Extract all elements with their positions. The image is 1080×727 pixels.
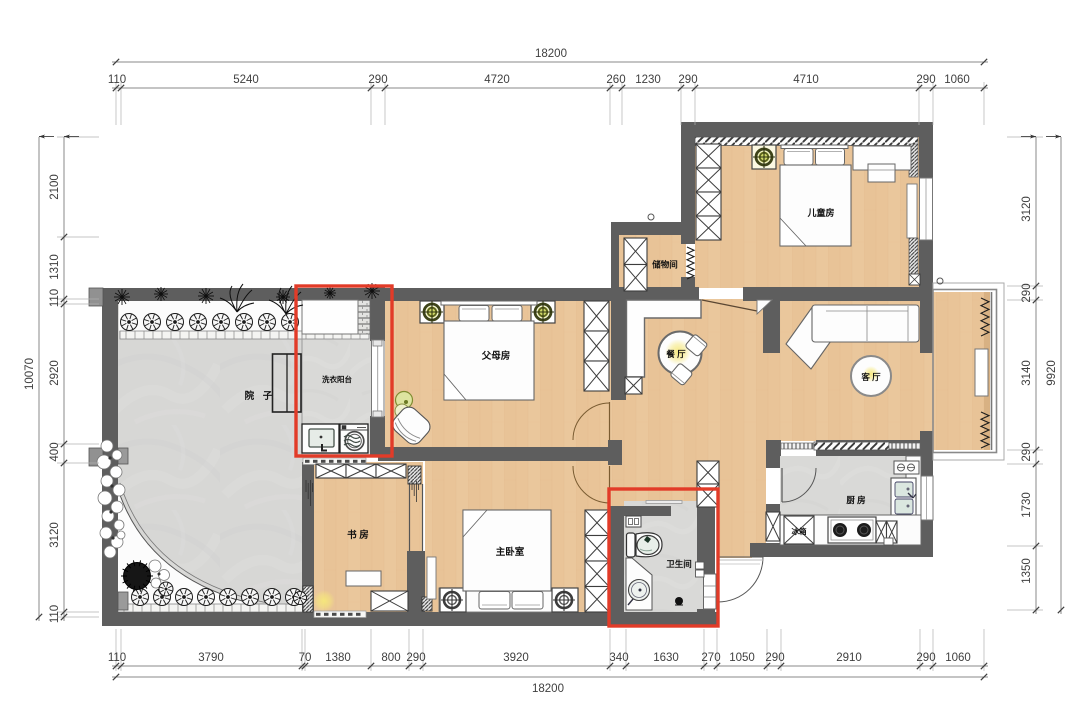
svg-text:1060: 1060 bbox=[944, 74, 970, 86]
svg-text:洗衣阳台: 洗衣阳台 bbox=[322, 374, 352, 384]
svg-text:2100: 2100 bbox=[49, 174, 61, 200]
svg-text:260: 260 bbox=[606, 74, 625, 86]
svg-text:4710: 4710 bbox=[793, 74, 819, 86]
svg-text:储物间: 储物间 bbox=[651, 260, 678, 270]
svg-text:110: 110 bbox=[49, 605, 61, 623]
svg-text:4720: 4720 bbox=[484, 74, 510, 86]
svg-text:290: 290 bbox=[678, 74, 697, 86]
svg-text:餐 厅: 餐 厅 bbox=[665, 349, 686, 359]
svg-text:2910: 2910 bbox=[836, 652, 862, 664]
svg-text:1310: 1310 bbox=[49, 254, 61, 280]
svg-text:3120: 3120 bbox=[1021, 196, 1033, 222]
svg-text:5240: 5240 bbox=[233, 74, 259, 86]
svg-text:1730: 1730 bbox=[1021, 492, 1033, 518]
svg-text:110: 110 bbox=[49, 289, 61, 307]
svg-text:3920: 3920 bbox=[503, 652, 529, 664]
svg-text:18200: 18200 bbox=[535, 48, 567, 60]
svg-text:1230: 1230 bbox=[635, 74, 661, 86]
svg-text:290: 290 bbox=[765, 652, 784, 664]
svg-text:10070: 10070 bbox=[24, 358, 36, 390]
svg-text:书 房: 书 房 bbox=[347, 529, 369, 541]
svg-text:3140: 3140 bbox=[1021, 360, 1033, 386]
svg-text:70: 70 bbox=[299, 652, 312, 664]
svg-text:1050: 1050 bbox=[729, 652, 755, 664]
svg-text:400: 400 bbox=[49, 442, 61, 461]
svg-text:290: 290 bbox=[916, 652, 935, 664]
svg-text:院 子: 院 子 bbox=[245, 390, 276, 402]
svg-text:110: 110 bbox=[108, 74, 126, 86]
svg-text:9920: 9920 bbox=[1046, 360, 1058, 386]
svg-text:1350: 1350 bbox=[1021, 558, 1033, 584]
svg-text:800: 800 bbox=[381, 652, 400, 664]
svg-text:2920: 2920 bbox=[49, 360, 61, 386]
svg-text:父母房: 父母房 bbox=[481, 350, 511, 362]
svg-text:3790: 3790 bbox=[198, 652, 224, 664]
svg-text:3120: 3120 bbox=[49, 522, 61, 548]
svg-text:冰箱: 冰箱 bbox=[792, 526, 807, 536]
svg-text:290: 290 bbox=[368, 74, 387, 86]
svg-text:290: 290 bbox=[1021, 442, 1033, 461]
svg-text:儿童房: 儿童房 bbox=[806, 207, 834, 218]
svg-text:厨 房: 厨 房 bbox=[846, 495, 865, 505]
svg-text:客 厅: 客 厅 bbox=[860, 372, 881, 382]
svg-text:290: 290 bbox=[916, 74, 935, 86]
svg-text:1380: 1380 bbox=[325, 652, 351, 664]
svg-text:110: 110 bbox=[108, 652, 126, 664]
svg-text:卫生间: 卫生间 bbox=[666, 559, 692, 569]
svg-text:1060: 1060 bbox=[945, 652, 971, 664]
svg-text:270: 270 bbox=[701, 652, 720, 664]
svg-text:主卧室: 主卧室 bbox=[496, 546, 525, 558]
svg-text:290: 290 bbox=[1021, 283, 1033, 302]
svg-text:340: 340 bbox=[609, 652, 628, 664]
svg-text:18200: 18200 bbox=[532, 683, 564, 695]
svg-text:1630: 1630 bbox=[653, 652, 679, 664]
svg-text:290: 290 bbox=[406, 652, 425, 664]
